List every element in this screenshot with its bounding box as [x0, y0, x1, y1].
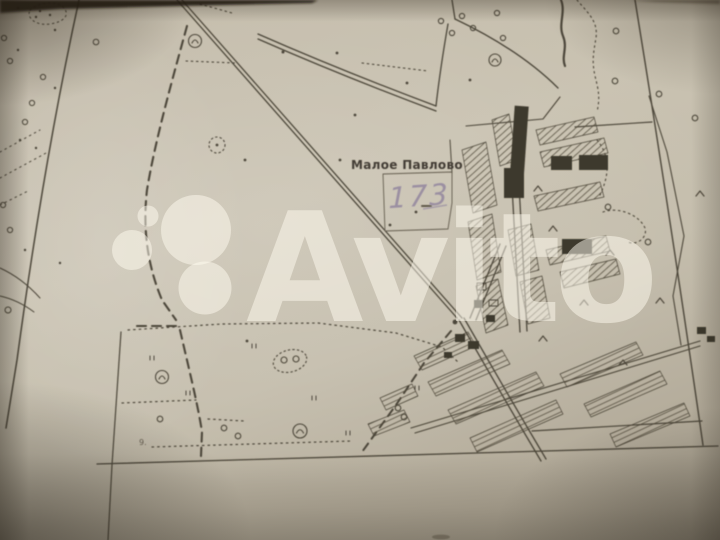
avito-logo-circles-icon	[112, 195, 232, 315]
photo-background-edge	[0, 0, 720, 13]
watermark-text: Avito	[246, 180, 652, 357]
left-map-sheet	[0, 0, 99, 428]
avito-watermark: Avito	[112, 180, 652, 357]
photo-of-paper-map: Малое Павлово 9. 173 Avito	[0, 0, 720, 540]
edge-mark: 9.	[139, 438, 147, 447]
frame-bottom	[97, 446, 718, 464]
settlement-label: Малое Павлово	[351, 158, 463, 172]
frame-left	[108, 332, 121, 540]
map-photo-svg: Малое Павлово 9. 173 Avito	[0, 0, 720, 540]
field-boundary-right	[649, 96, 684, 345]
left-sheet-frame-line	[6, 0, 79, 428]
stream	[561, 0, 565, 66]
